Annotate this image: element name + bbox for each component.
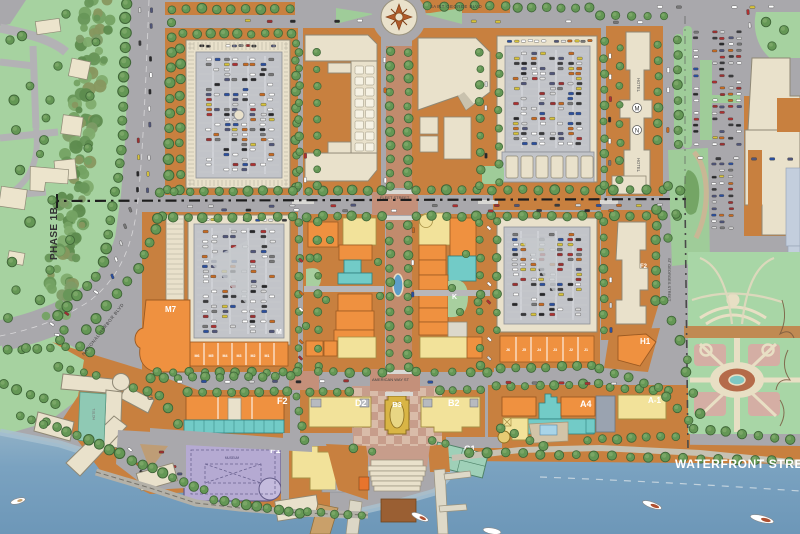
svg-text:D2: D2 [355,398,367,408]
svg-text:HOTEL: HOTEL [636,158,641,173]
svg-text:N: N [635,129,639,135]
svg-text:F2: F2 [640,264,648,270]
svg-text:J2: J2 [569,348,573,352]
svg-text:M1: M1 [265,354,270,358]
svg-text:PHASE 1B: PHASE 1B [49,207,60,260]
svg-text:J6: J6 [506,348,510,352]
svg-text:F2: F2 [277,396,288,406]
svg-text:J3: J3 [553,348,557,352]
svg-text:J1: J1 [584,348,588,352]
svg-text:M: M [635,107,640,113]
svg-text:M6: M6 [195,354,200,358]
svg-text:B3: B3 [392,400,402,409]
svg-text:M: M [276,329,282,336]
svg-text:M5: M5 [209,354,214,358]
svg-text:A-1: A-1 [648,396,661,405]
svg-text:WATERFRONT STREET: WATERFRONT STREET [675,457,800,471]
svg-text:M2: M2 [251,354,256,358]
svg-text:MUSEUM: MUSEUM [225,456,240,460]
svg-text:HOTEL: HOTEL [92,408,96,420]
svg-text:H1: H1 [640,337,651,346]
svg-text:J5: J5 [522,348,526,352]
svg-text:ST GEORGES STREET: ST GEORGES STREET [667,258,672,302]
svg-text:HOTEL: HOTEL [636,78,641,93]
svg-text:J4: J4 [537,348,541,352]
svg-text:M7: M7 [165,305,177,314]
svg-text:B2: B2 [448,398,460,408]
svg-text:K: K [452,294,457,301]
svg-text:SAINT GEORGE BLVD: SAINT GEORGE BLVD [430,4,482,9]
svg-text:M3: M3 [237,354,242,358]
svg-text:M4: M4 [223,354,228,358]
svg-text:A4: A4 [580,399,592,409]
svg-text:AMERICAN WAY ST: AMERICAN WAY ST [372,377,410,382]
svg-text:FLEET STREET: FLEET STREET [380,195,410,200]
